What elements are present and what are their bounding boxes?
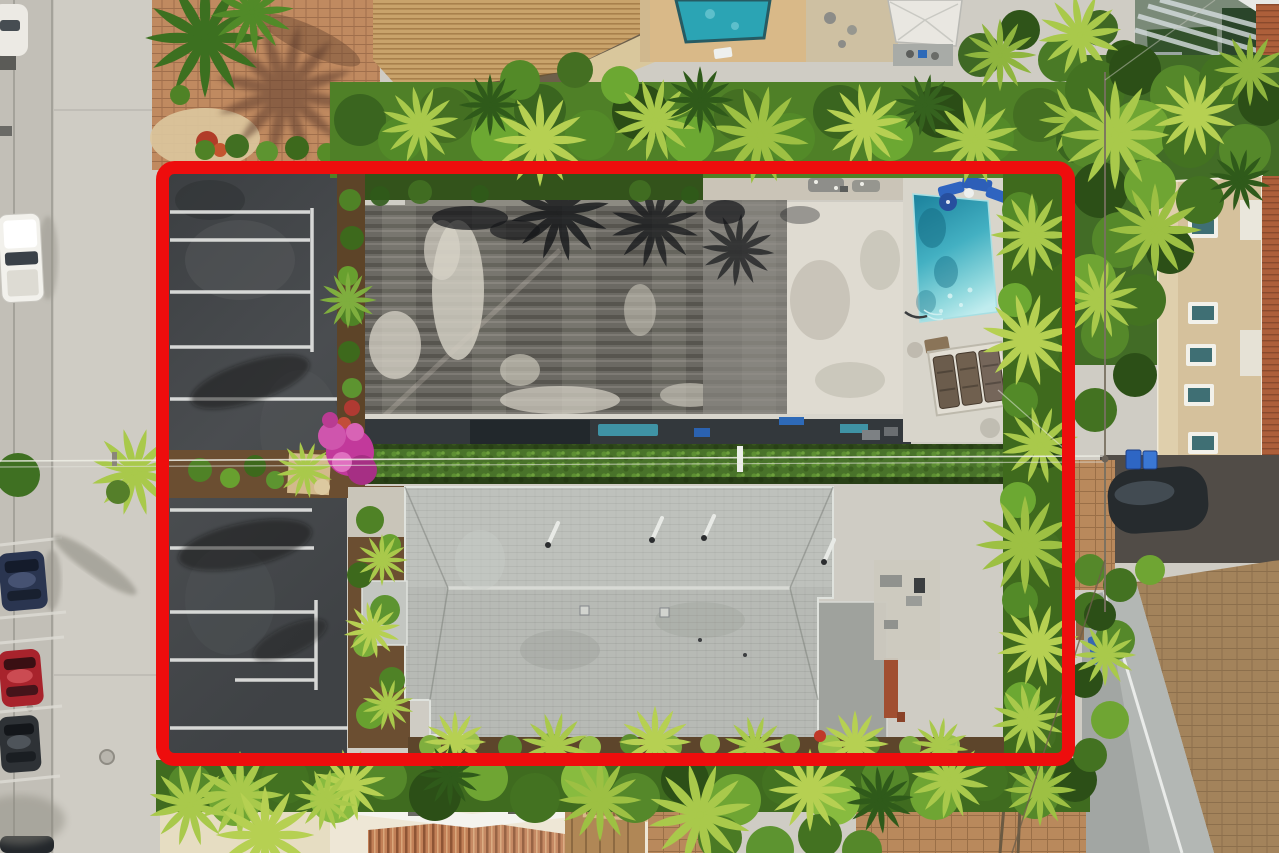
south-building-roof (348, 486, 940, 748)
dark-blue-car (0, 550, 48, 612)
dark-gray-car (0, 715, 42, 774)
utility-pole (112, 452, 117, 466)
red-flowers (344, 400, 360, 416)
teal-awning (598, 424, 658, 436)
sun-loungers (928, 342, 1010, 416)
red-wall (884, 658, 898, 718)
aerial-photo (0, 0, 1279, 853)
white-post (737, 446, 743, 472)
blue-bin (1143, 451, 1157, 469)
covered-car (1106, 465, 1210, 536)
red-car (0, 648, 44, 707)
blue-bin (1126, 450, 1141, 469)
manhole-cover (100, 750, 114, 764)
terracotta-roof (1262, 176, 1279, 476)
rear-patio (874, 560, 940, 660)
white-truck (0, 213, 44, 303)
neighbor-pool (676, 0, 770, 42)
